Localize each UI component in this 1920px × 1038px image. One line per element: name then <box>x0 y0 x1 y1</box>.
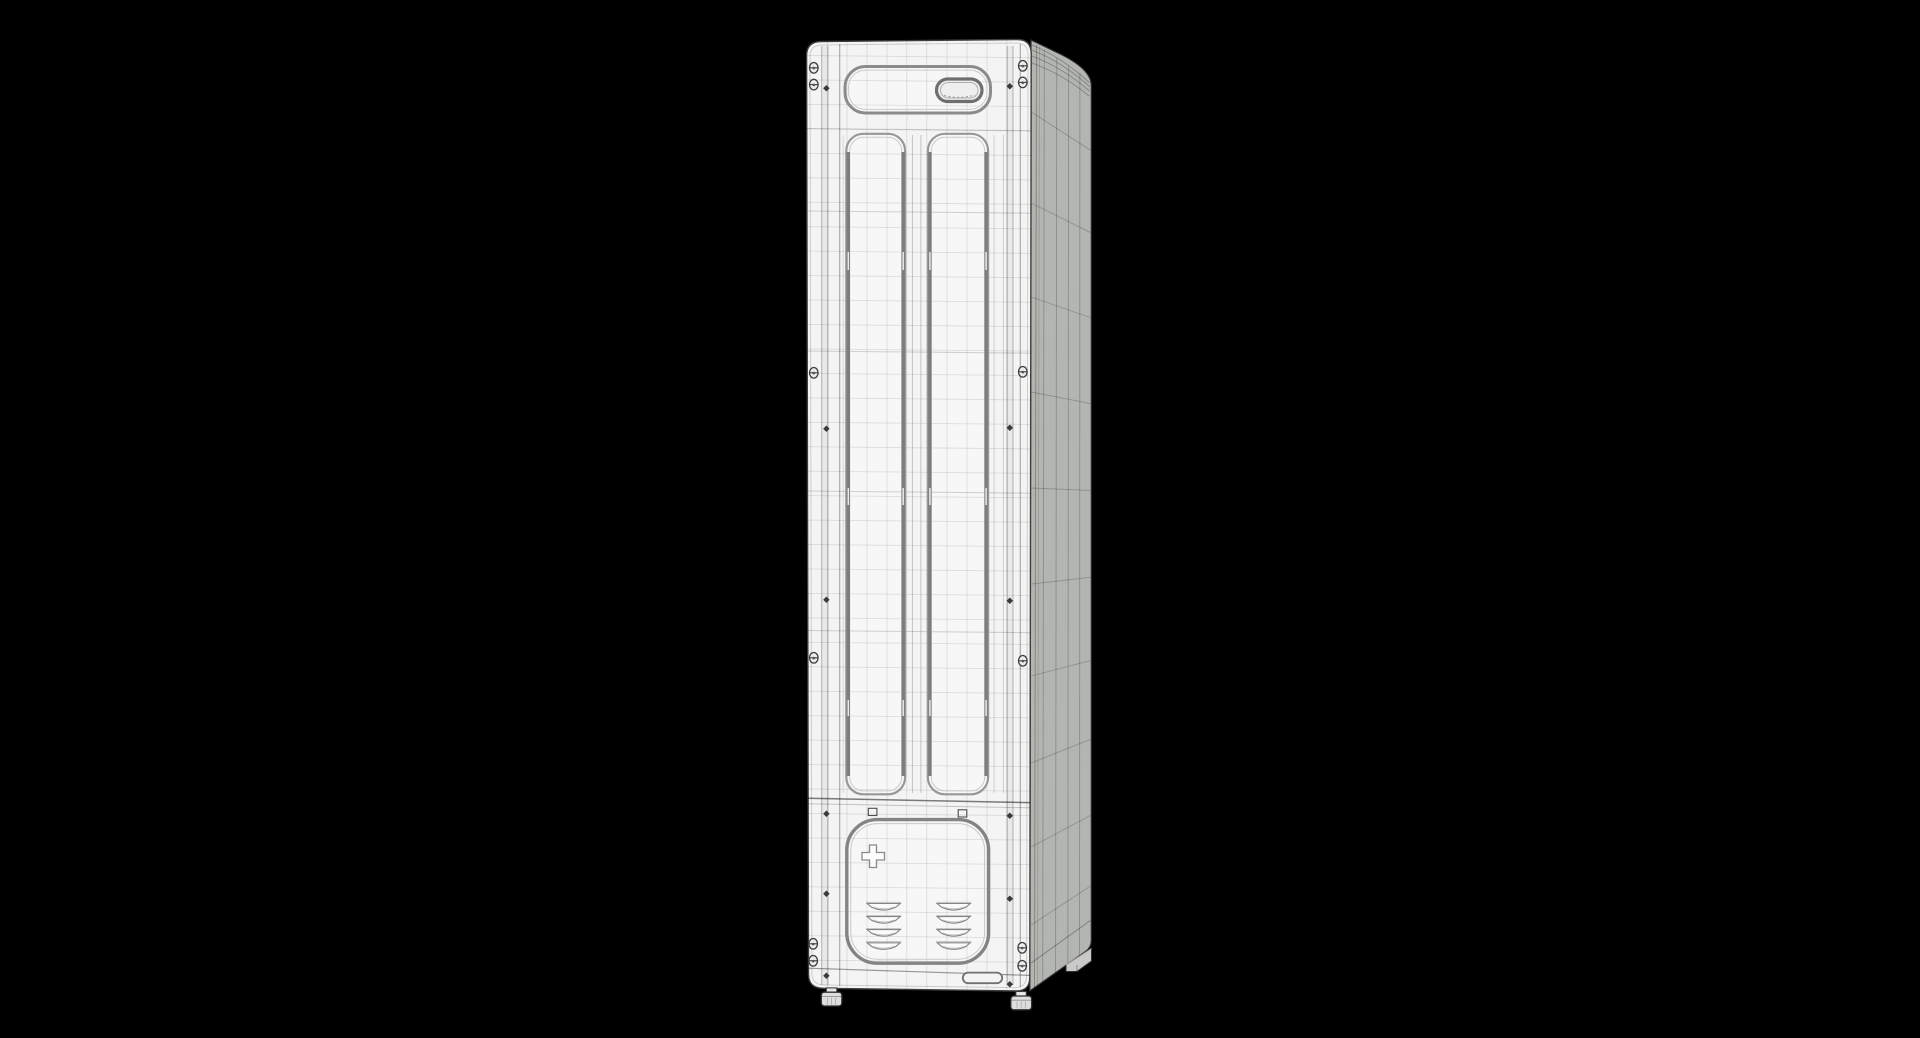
screw-head <box>810 653 819 664</box>
screw-head <box>1018 961 1027 972</box>
screw-head <box>1019 656 1028 667</box>
viewport-3d[interactable] <box>0 0 1920 1038</box>
screw-head <box>1019 77 1028 88</box>
screw-head <box>810 368 819 379</box>
screw-head <box>809 956 818 967</box>
foot-front-left <box>821 988 842 1006</box>
screw-head <box>809 939 818 950</box>
foot-front-right <box>1011 992 1032 1010</box>
screw-head <box>810 79 819 90</box>
screw-head <box>1019 367 1028 378</box>
side-face <box>1030 40 1092 991</box>
cabinet-render <box>0 0 1920 1038</box>
front-face <box>807 39 1032 991</box>
screw-head <box>810 63 819 74</box>
trim-handle <box>937 79 983 101</box>
screw-head <box>1019 61 1028 72</box>
label-slot <box>963 973 1002 984</box>
screw-head <box>1018 943 1027 954</box>
